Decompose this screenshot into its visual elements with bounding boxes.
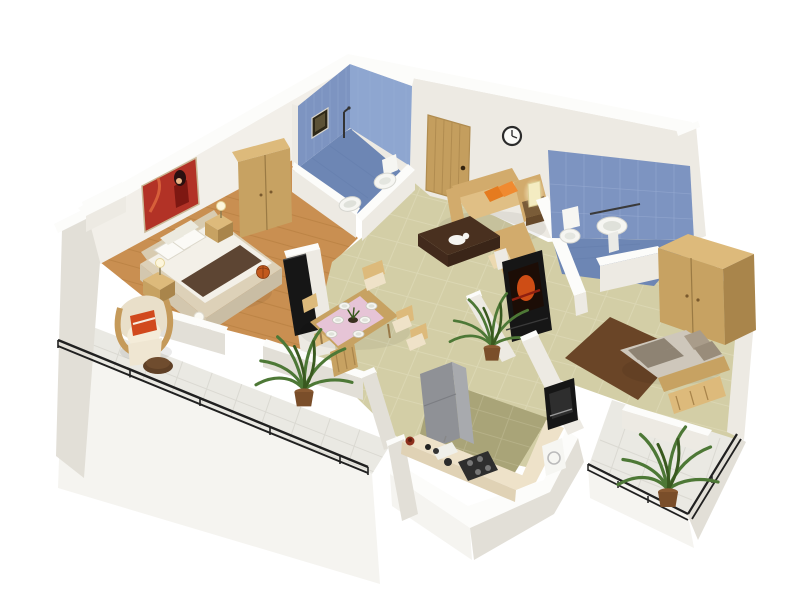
door-handle bbox=[461, 166, 466, 171]
refrigerator bbox=[420, 362, 474, 450]
place-setting bbox=[326, 331, 337, 338]
partition-wall-face bbox=[574, 292, 588, 316]
table-lamp bbox=[156, 259, 165, 268]
bathroom-1-west-strip bbox=[292, 104, 298, 168]
place-setting bbox=[339, 303, 350, 310]
floor-plan-render bbox=[0, 0, 800, 600]
basketball bbox=[257, 266, 270, 279]
wall-clock bbox=[503, 127, 521, 145]
place-setting bbox=[360, 317, 371, 324]
basin-pedestal bbox=[608, 231, 619, 253]
red-pot bbox=[406, 437, 415, 446]
table-lamp bbox=[217, 202, 226, 211]
apartment-3d-scene bbox=[0, 0, 800, 600]
kettle bbox=[444, 458, 452, 466]
place-setting bbox=[366, 303, 377, 310]
wardrobe-1 bbox=[232, 138, 292, 238]
place-setting bbox=[353, 331, 364, 338]
place-setting bbox=[333, 317, 344, 324]
